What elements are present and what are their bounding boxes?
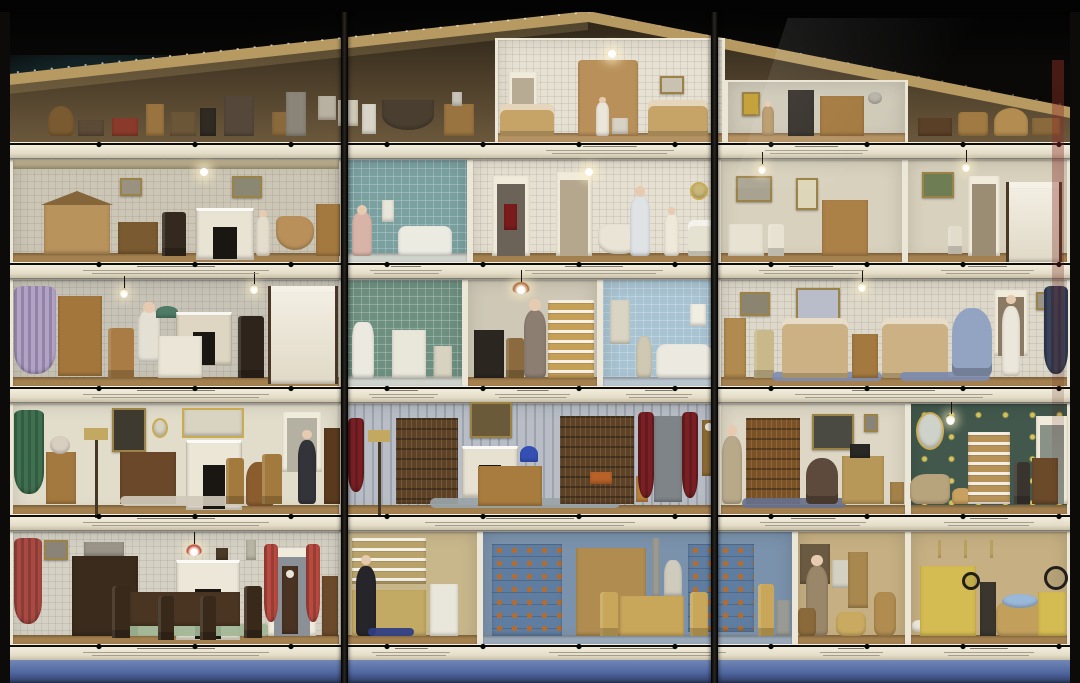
side-table <box>46 452 76 504</box>
grey-picture <box>44 540 68 560</box>
dark-chair <box>238 316 264 378</box>
gentleman-doll <box>722 436 742 504</box>
dark-doorway <box>788 90 814 136</box>
towel-rail <box>382 200 394 222</box>
standard-lamp <box>84 428 108 518</box>
tallboy-chest <box>58 296 102 376</box>
lighting-cable <box>0 385 1080 392</box>
blue-mat <box>368 628 414 636</box>
hanging-lantern <box>758 164 766 174</box>
oval-frame <box>152 418 168 438</box>
towel-rail <box>610 300 630 344</box>
stacked-boxes <box>170 112 196 136</box>
plaster-bust <box>362 104 376 134</box>
fruit-bowl <box>590 472 612 484</box>
dressing-table <box>728 224 764 256</box>
wooden-chair <box>108 328 134 378</box>
kitchen-chair <box>600 592 618 636</box>
washstand <box>392 330 426 378</box>
toilet <box>352 322 374 378</box>
red-drape <box>14 538 42 624</box>
round-frame <box>690 182 708 200</box>
armchair <box>806 458 838 504</box>
side-chair <box>754 330 774 378</box>
case-frame-right <box>1070 0 1080 683</box>
hanging-lantern <box>962 162 970 172</box>
bookcase <box>560 416 634 504</box>
wash-pail <box>798 608 816 636</box>
night-table <box>852 334 878 378</box>
yellow-picture <box>742 92 760 116</box>
landscape-picture <box>736 176 772 202</box>
wash-tub-stand <box>1038 592 1066 636</box>
bedroom-door <box>968 176 1000 256</box>
red-portiere <box>682 412 698 498</box>
dining-chair <box>244 586 262 638</box>
lady-in-robe <box>352 212 372 256</box>
play-table <box>118 222 158 254</box>
parlour-maid <box>298 440 316 504</box>
whatnot-shelf <box>968 432 1010 504</box>
red-portiere <box>638 412 654 498</box>
ceiling-light <box>608 50 616 58</box>
bathtub <box>398 226 452 256</box>
bathtub <box>656 344 712 378</box>
ship-picture <box>232 176 262 198</box>
mantel-clock <box>216 548 228 560</box>
gilt-picture <box>470 402 512 438</box>
framed-photos <box>78 120 104 136</box>
butler-doll <box>356 566 376 636</box>
gilt-portrait <box>112 408 146 452</box>
hanging-lantern <box>858 282 866 292</box>
spinning-wheel <box>48 106 74 136</box>
candelabrum <box>246 540 256 560</box>
ceiling-light <box>585 168 593 176</box>
kitchen-table <box>620 596 684 636</box>
archway <box>654 416 682 502</box>
child-doll <box>596 102 609 136</box>
twin-bed <box>882 318 948 378</box>
bookcase <box>396 418 458 504</box>
laundry-basket <box>836 612 866 636</box>
dining-table <box>130 592 240 626</box>
round-boxes <box>994 108 1028 136</box>
red-feather-stand <box>504 204 517 230</box>
rocking-chair <box>162 212 186 256</box>
oil-lamp <box>120 288 128 298</box>
pedestal-clock <box>282 566 298 634</box>
mirror-stand <box>286 92 306 136</box>
wing-chair <box>952 308 992 376</box>
barrel <box>874 592 896 636</box>
white-chair <box>768 224 784 256</box>
case-frame-top <box>0 0 1080 12</box>
boiler <box>664 560 682 596</box>
blue-shade-lamp <box>520 446 538 462</box>
ceiling-light <box>200 168 208 176</box>
red-drape <box>264 544 278 622</box>
writing-desk <box>316 204 340 256</box>
glass-glare <box>1052 60 1064 530</box>
rocking-horse <box>276 216 314 250</box>
gilt-chair <box>226 458 244 504</box>
blue-linens <box>1002 594 1038 608</box>
clothes-rack <box>224 96 254 136</box>
red-drape <box>306 544 320 622</box>
sewing-machine <box>474 330 504 378</box>
green-shade-lamp <box>156 306 178 318</box>
bicycle-wheel <box>1044 566 1068 590</box>
child-bed <box>500 104 554 136</box>
toy-cart <box>112 118 138 136</box>
typewriter <box>850 444 870 458</box>
copper-boiler <box>980 582 996 636</box>
glass-mullion <box>341 0 348 683</box>
hammock <box>382 100 434 130</box>
high-chair <box>146 104 164 136</box>
towel <box>690 304 706 326</box>
stove-pipe <box>652 538 660 598</box>
hanging-utensil <box>990 540 993 558</box>
glass-mullion <box>711 0 718 683</box>
green-picture <box>922 172 954 198</box>
nurse-doll <box>630 196 650 256</box>
kitchen-chair <box>690 592 708 636</box>
servant-doll <box>762 106 774 136</box>
chest-of-drawers <box>822 200 868 256</box>
dining-chair <box>112 586 130 638</box>
open-trunk <box>158 336 202 378</box>
four-poster-bed <box>268 286 338 384</box>
lighting-cable <box>0 513 1080 520</box>
case-frame-left <box>0 0 10 683</box>
water-jug <box>636 336 652 378</box>
botanical-picture <box>796 288 840 320</box>
display-cabinet <box>746 418 800 504</box>
oil-lamp <box>250 284 258 294</box>
hamper <box>958 112 988 136</box>
stool <box>434 346 452 378</box>
waste-basket <box>890 482 904 504</box>
small-picture <box>864 414 878 432</box>
flour-bin <box>776 600 790 636</box>
twin-bed <box>782 318 848 378</box>
mangle-wheel <box>962 572 980 590</box>
toy-dollhouse <box>44 204 110 254</box>
dark-picture <box>740 292 770 316</box>
linen-cupboard <box>548 300 594 378</box>
lighting-cable <box>0 261 1080 268</box>
toy-pram <box>612 118 628 134</box>
duck-picture <box>660 76 684 94</box>
dining-chair <box>158 596 174 640</box>
overmantel-mirror <box>182 408 244 438</box>
wall-frieze <box>13 160 339 169</box>
green-curtain <box>14 410 44 494</box>
desk <box>842 456 884 504</box>
plant-stand <box>322 576 338 636</box>
window <box>796 178 818 210</box>
lavender-curtains <box>14 286 56 374</box>
lounge <box>910 474 950 504</box>
oil-lamp <box>452 92 462 106</box>
hanging-utensil <box>964 540 967 558</box>
table-lamp <box>868 92 882 104</box>
china-cabinet <box>324 428 340 504</box>
gramophone <box>200 108 216 136</box>
copper-dome-lamp <box>512 282 530 294</box>
corner-shelf <box>724 318 746 378</box>
hall-door <box>556 172 592 256</box>
side-table <box>444 104 474 136</box>
hanging-utensil <box>938 540 941 558</box>
high-chair <box>758 584 774 636</box>
small-picture <box>120 178 142 196</box>
silver-urns <box>84 542 124 556</box>
dark-chair <box>1014 462 1030 504</box>
nursery-fireplace <box>196 208 254 260</box>
lighting-cable <box>0 643 1080 650</box>
kitchen-dresser <box>492 544 562 636</box>
dress-form <box>524 310 546 378</box>
child-bed <box>648 100 708 136</box>
lady-doll <box>1002 306 1020 376</box>
red-curtain <box>348 418 364 492</box>
white-range <box>430 584 458 636</box>
red-shade-lamp <box>186 544 202 556</box>
dining-chair <box>200 596 216 640</box>
ceiling-lamp <box>946 414 955 425</box>
library-table <box>478 466 542 506</box>
flower-vase <box>50 436 70 454</box>
dollhouse-display-case <box>0 0 1080 683</box>
display-base <box>6 660 1074 683</box>
cupboard <box>820 96 864 136</box>
oval-mirror <box>916 412 944 450</box>
bentwood-chair <box>506 338 524 378</box>
birdcage <box>318 96 336 120</box>
dark-window <box>812 414 854 450</box>
standard-lamp <box>368 430 390 516</box>
girl-doll <box>256 216 270 256</box>
lighting-cable <box>0 141 1080 148</box>
girl-doll <box>664 214 679 256</box>
brooms <box>848 552 868 608</box>
small-chair <box>948 226 962 254</box>
trunk <box>918 118 952 136</box>
gilt-chair <box>262 454 282 504</box>
